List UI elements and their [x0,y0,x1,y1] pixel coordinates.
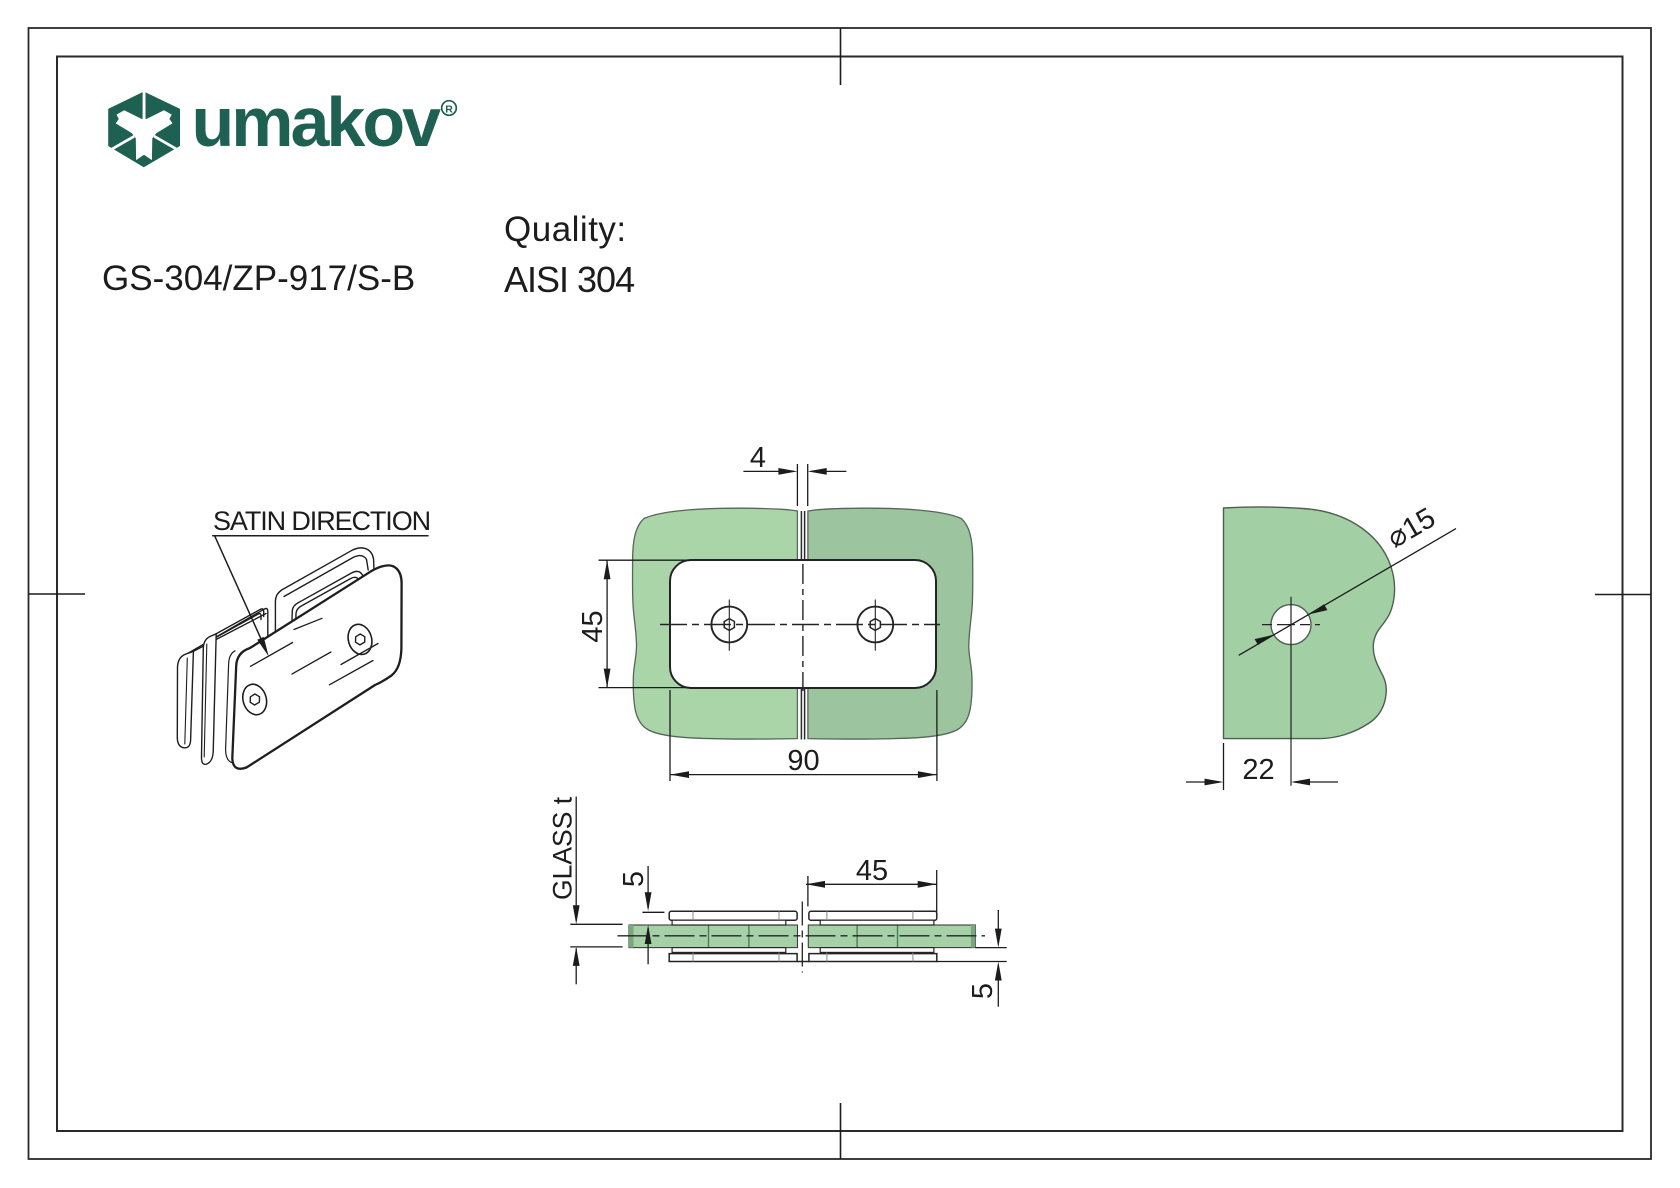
svg-text:AISI 304: AISI 304 [504,259,634,300]
svg-text:R: R [445,104,453,116]
svg-text:GS-304/ZP-917/S-B: GS-304/ZP-917/S-B [102,259,415,298]
svg-text:5: 5 [967,983,999,999]
svg-text:GLASS t: GLASS t [548,796,578,900]
svg-text:SATIN DIRECTION: SATIN DIRECTION [213,506,430,536]
svg-text:Quality:: Quality: [504,210,627,249]
svg-text:5: 5 [618,871,650,887]
svg-text:45: 45 [856,855,888,887]
svg-text:45: 45 [577,610,609,642]
svg-text:4: 4 [750,442,766,474]
svg-text:90: 90 [787,745,819,777]
svg-text:22: 22 [1242,754,1274,786]
svg-text:umakov: umakov [192,83,442,161]
